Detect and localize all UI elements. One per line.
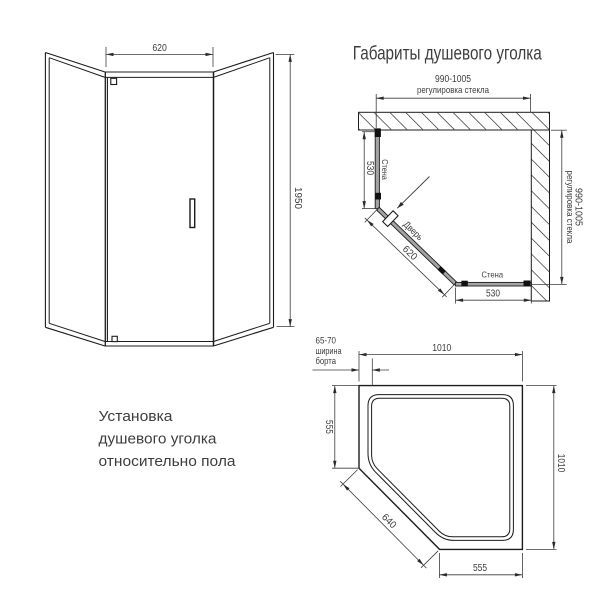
svg-text:555: 555 [473, 563, 487, 574]
svg-text:борта: борта [316, 356, 337, 366]
svg-text:душевого уголка: душевого уголка [99, 431, 218, 448]
svg-text:регулировка стекла: регулировка стекла [564, 171, 575, 245]
svg-text:Стена: Стена [482, 270, 504, 280]
svg-text:1950: 1950 [292, 187, 303, 209]
svg-text:530: 530 [486, 289, 500, 300]
svg-text:ширина: ширина [316, 346, 342, 356]
svg-text:регулировка стекла: регулировка стекла [417, 85, 490, 96]
svg-text:1010: 1010 [555, 454, 566, 473]
svg-text:Установка: Установка [99, 408, 174, 425]
svg-text:990-1005: 990-1005 [435, 74, 471, 85]
svg-text:530: 530 [364, 161, 375, 175]
svg-text:1010: 1010 [432, 343, 451, 354]
svg-text:Стена: Стена [380, 159, 390, 180]
svg-text:65-70: 65-70 [316, 336, 337, 346]
svg-text:620: 620 [152, 43, 167, 54]
svg-text:относительно пола: относительно пола [99, 453, 237, 470]
svg-text:555: 555 [323, 420, 334, 434]
svg-text:Габариты душевого уголка: Габариты душевого уголка [353, 42, 542, 64]
